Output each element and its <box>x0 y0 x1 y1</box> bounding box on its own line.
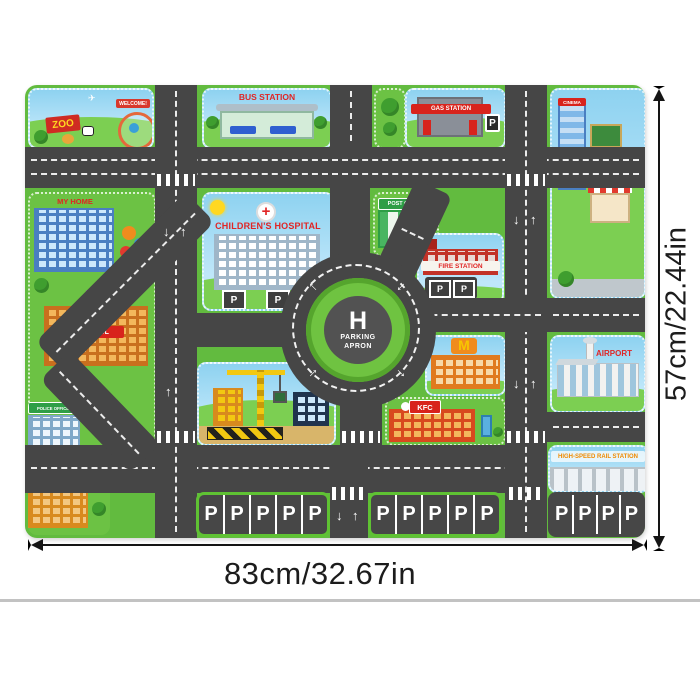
crosswalk <box>342 431 380 443</box>
tree-icon <box>92 502 106 516</box>
ring-west-road <box>197 313 287 347</box>
lane-line <box>553 314 639 316</box>
bus-station-block: BUS STATION <box>202 88 332 149</box>
bench-icon <box>270 126 296 134</box>
gas-station-block: GAS STATION P <box>405 88 506 149</box>
lane-arrow-icon: ↓ <box>163 225 170 238</box>
bus-side-road <box>330 85 372 147</box>
bench-icon <box>230 126 256 134</box>
crosswalk <box>507 431 545 443</box>
terminal-roof <box>555 359 598 365</box>
arrow-up-head <box>653 86 665 101</box>
my-home-building <box>34 208 114 272</box>
arrow-left-head <box>28 539 43 551</box>
crosswalk <box>157 431 195 443</box>
hospital-parking-stall: P <box>222 290 246 310</box>
tower-dome <box>583 337 597 344</box>
fire-station-sign: FIRE STATION <box>421 261 500 271</box>
welcome-banner: WELCOME! <box>116 99 150 108</box>
parking-stall: P <box>449 495 475 534</box>
tree-icon <box>493 427 503 437</box>
kfc-block: KFC <box>385 397 506 446</box>
lane-arrow-icon: ↑ <box>180 225 187 238</box>
lane-line <box>175 91 177 532</box>
green-strip-block <box>374 88 406 149</box>
rail-station-block: HIGH-SPEED RAIL STATION <box>548 445 645 493</box>
lane-arrow-icon: ↑ <box>352 509 359 522</box>
parking-stall: P <box>551 495 574 534</box>
width-dimension-label: 83cm/32.67in <box>100 556 540 592</box>
sun-icon <box>210 200 225 215</box>
lane-line <box>421 314 541 316</box>
city-street-block: CINEMA <box>550 88 645 299</box>
arrow-right-head <box>632 539 647 551</box>
height-dimension-label: 57cm/22.44in <box>661 227 694 401</box>
rail-station-building <box>550 467 645 491</box>
lane-line <box>401 228 424 240</box>
product-image: ✈ WELCOME! ZOO BUS STATION GAS <box>0 0 700 700</box>
billboard-icon <box>590 124 622 148</box>
parking-lot: P P P P <box>548 492 645 537</box>
bus-shelter-roof <box>216 104 318 111</box>
parking-stall: P <box>199 495 225 534</box>
bus-station-label: BUS STATION <box>204 92 330 102</box>
helipad-h-marking: H <box>349 309 367 334</box>
helipad-caption: PARKING <box>340 334 375 343</box>
parking-stall: P <box>598 495 621 534</box>
city-play-mat: ✈ WELCOME! ZOO BUS STATION GAS <box>25 85 645 538</box>
ferris-wheel-hub <box>129 123 139 133</box>
airport-label: AIRPORT <box>586 349 642 358</box>
lane-line <box>31 467 541 469</box>
parking-stall: P <box>225 495 251 534</box>
shop-front <box>590 193 630 223</box>
crane-load <box>273 391 287 403</box>
crosswalk <box>332 487 366 500</box>
construction-barrier <box>207 427 283 440</box>
plane-icon: ✈ <box>88 93 96 104</box>
parking-stall: P <box>277 495 303 534</box>
tree-icon <box>34 130 48 144</box>
hospital-label: CHILDREN'S HOSPITAL <box>204 221 332 231</box>
kfc-sign: KFC <box>409 400 441 414</box>
photo-edge-line <box>0 599 700 602</box>
lane-line <box>553 426 639 428</box>
my-home-label: MY HOME <box>32 197 118 206</box>
fire-parking-stall: P <box>453 280 475 298</box>
parking-stall: P <box>371 495 397 534</box>
site-building <box>213 388 243 426</box>
fuel-pump-icon <box>469 120 477 135</box>
arrow-down-head <box>653 536 665 551</box>
lane-arrow-icon: ↓ <box>513 377 520 390</box>
lane-arrow-icon: ↑ <box>530 213 537 226</box>
crosswalk <box>507 174 545 186</box>
crosswalk <box>509 487 543 500</box>
mcdonalds-arches-icon: M <box>451 338 477 354</box>
parking-stall: P <box>621 495 642 534</box>
helipad-caption: APRON <box>344 343 372 352</box>
fire-parking-stall: P <box>429 280 451 298</box>
lion-icon <box>62 134 74 144</box>
balloon-icon <box>122 226 136 240</box>
lane-line <box>350 91 352 141</box>
lane-arrow-icon: ↓ <box>513 213 520 226</box>
gas-station-sign: GAS STATION <box>411 104 491 114</box>
tree-icon <box>558 271 574 287</box>
lane-line <box>31 159 639 161</box>
fuel-pump-icon <box>423 120 431 135</box>
tree-icon <box>383 122 397 136</box>
parking-stall: P <box>574 495 597 534</box>
mcdonalds-block: M <box>425 335 506 396</box>
tree-icon <box>34 278 49 293</box>
top-road <box>25 147 645 188</box>
left-vertical-road <box>155 85 197 538</box>
colonel-icon <box>401 402 410 411</box>
hospital-side-road <box>330 188 370 260</box>
bus-shelter-glass <box>220 111 314 139</box>
phone-booth-icon <box>481 415 492 437</box>
airport-block: AIRPORT <box>550 335 645 413</box>
tree-icon <box>381 98 399 116</box>
rail-station-sign: HIGH-SPEED RAIL STATION <box>551 451 645 462</box>
airport-rail-road <box>547 412 645 442</box>
crosswalk <box>157 174 195 186</box>
panda-icon <box>82 126 94 136</box>
parking-stall: P <box>303 495 327 534</box>
bottom-road <box>25 445 547 493</box>
lane-arrow-icon: ↑ <box>530 377 537 390</box>
roundabout: ← ← ← ← H PARKING APRON <box>280 252 436 408</box>
crane-cable <box>279 375 281 391</box>
parking-stall: P <box>423 495 449 534</box>
lane-line <box>31 173 639 175</box>
mcdonalds-building <box>431 355 500 389</box>
tree-icon <box>206 116 219 129</box>
medical-cross-icon: + <box>256 202 276 222</box>
zoo-block: ✈ WELCOME! ZOO <box>28 88 154 149</box>
width-dimension-line <box>38 544 634 546</box>
lane-arrow-icon: ↓ <box>336 509 343 522</box>
parking-stall: P <box>397 495 423 534</box>
tree-icon <box>314 116 327 129</box>
crane-arm <box>227 370 285 375</box>
parking-stall: P <box>475 495 499 534</box>
city-airport-road <box>547 298 645 332</box>
terminal-building <box>557 363 639 397</box>
parking-lot: P P P P P <box>196 492 330 537</box>
parking-lot: P P P P P <box>368 492 502 537</box>
lane-arrow-icon: ↑ <box>165 385 172 398</box>
cinema-sign: CINEMA <box>558 98 586 106</box>
parking-stall: P <box>251 495 277 534</box>
crane-mast <box>257 370 264 426</box>
helipad: H PARKING APRON <box>324 296 392 364</box>
parking-sign: P <box>485 114 500 132</box>
